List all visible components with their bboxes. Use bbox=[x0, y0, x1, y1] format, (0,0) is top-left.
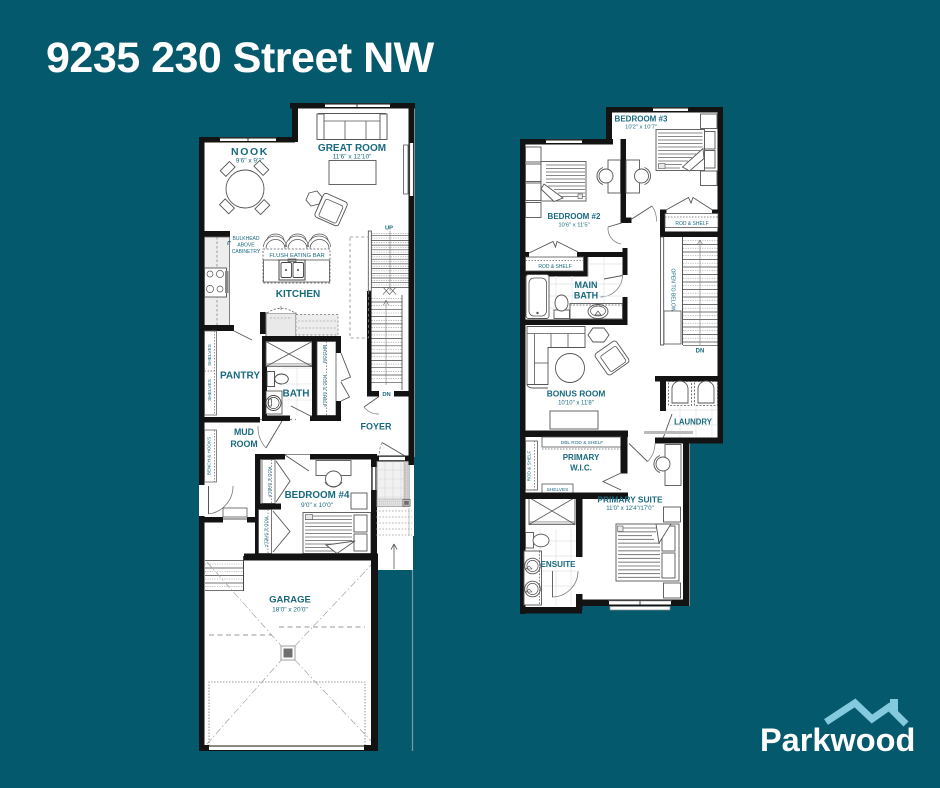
svg-text:ROD & SHELF: ROD & SHELF bbox=[527, 450, 532, 481]
svg-text:11'0" x 12'4"/17'0": 11'0" x 12'4"/17'0" bbox=[606, 506, 653, 512]
svg-text:Parkwood: Parkwood bbox=[760, 722, 915, 758]
svg-text:SHELVES: SHELVES bbox=[547, 487, 569, 493]
svg-text:BONUS ROOM: BONUS ROOM bbox=[547, 389, 606, 399]
svg-text:FLUSH EATING BAR: FLUSH EATING BAR bbox=[269, 253, 324, 259]
svg-text:FOYER: FOYER bbox=[360, 422, 392, 432]
svg-text:CABINETRY: CABINETRY bbox=[232, 249, 261, 255]
svg-text:PANTRY: PANTRY bbox=[220, 371, 260, 382]
svg-text:PRIMARY: PRIMARY bbox=[563, 453, 600, 462]
svg-text:BEDROOM #3: BEDROOM #3 bbox=[615, 115, 668, 124]
svg-text:ENSUITE: ENSUITE bbox=[540, 560, 576, 569]
svg-text:11'6" x 12'10": 11'6" x 12'10" bbox=[333, 154, 372, 161]
svg-text:W.I.C.: W.I.C. bbox=[570, 464, 592, 473]
svg-text:BEDROOM #2: BEDROOM #2 bbox=[548, 212, 601, 221]
svg-text:18'0" x 20'0": 18'0" x 20'0" bbox=[272, 607, 308, 614]
svg-text:ABOVE: ABOVE bbox=[237, 243, 255, 249]
svg-text:MAIN: MAIN bbox=[575, 280, 598, 290]
svg-text:UP: UP bbox=[385, 226, 393, 232]
svg-text:10'10" x 11'8": 10'10" x 11'8" bbox=[558, 401, 594, 407]
svg-text:OPEN TO BELOW: OPEN TO BELOW bbox=[670, 268, 676, 311]
svg-text:NOOK: NOOK bbox=[231, 146, 269, 158]
svg-text:BROOM: BROOM bbox=[321, 345, 327, 363]
svg-text:10'6" x 11'5": 10'6" x 11'5" bbox=[558, 223, 589, 229]
svg-text:SHELVES: SHELVES bbox=[207, 379, 213, 401]
svg-text:LAUNDRY: LAUNDRY bbox=[674, 418, 713, 427]
svg-text:ROD & SHELF: ROD & SHELF bbox=[264, 517, 269, 548]
svg-text:ROD & SHELF: ROD & SHELF bbox=[321, 375, 327, 407]
svg-text:ROOM: ROOM bbox=[230, 439, 257, 449]
svg-text:SHELVES: SHELVES bbox=[207, 344, 213, 366]
svg-text:BENCH & HOOKS: BENCH & HOOKS bbox=[207, 437, 212, 475]
svg-text:PRIMARY SUITE: PRIMARY SUITE bbox=[597, 495, 663, 505]
svg-text:BULKHEAD: BULKHEAD bbox=[233, 236, 260, 242]
svg-text:BEDROOM #4: BEDROOM #4 bbox=[285, 490, 350, 501]
svg-text:DN: DN bbox=[696, 349, 705, 355]
svg-text:ROD & SHELF: ROD & SHELF bbox=[267, 467, 272, 498]
svg-text:MUD: MUD bbox=[234, 427, 254, 437]
svg-text:ROD & SHELF: ROD & SHELF bbox=[538, 264, 571, 270]
svg-text:GARAGE: GARAGE bbox=[269, 595, 311, 606]
svg-text:BATH: BATH bbox=[574, 291, 598, 301]
svg-text:9235 230 Street NW: 9235 230 Street NW bbox=[46, 34, 435, 82]
svg-text:DN: DN bbox=[382, 392, 390, 398]
svg-text:10'2" x 10'7": 10'2" x 10'7" bbox=[625, 125, 657, 131]
svg-text:BATH: BATH bbox=[282, 389, 309, 400]
svg-text:KITCHEN: KITCHEN bbox=[276, 289, 320, 300]
svg-text:DBL ROD & SHELF: DBL ROD & SHELF bbox=[561, 440, 604, 446]
svg-text:GREAT ROOM: GREAT ROOM bbox=[318, 143, 386, 154]
svg-text:ROD & SHELF: ROD & SHELF bbox=[675, 221, 708, 227]
svg-text:9'0" x 10'0": 9'0" x 10'0" bbox=[301, 502, 334, 509]
